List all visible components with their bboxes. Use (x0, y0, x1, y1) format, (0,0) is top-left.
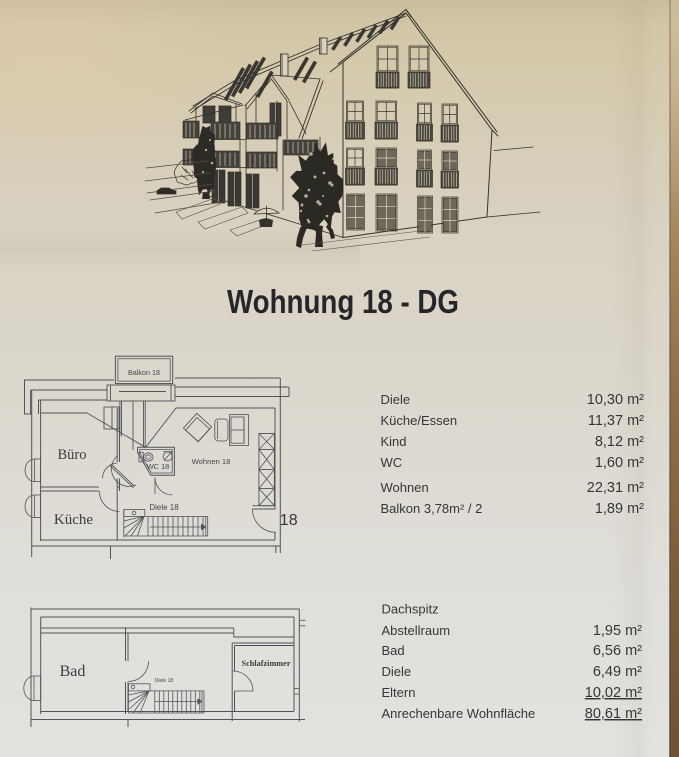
svg-text:18: 18 (280, 512, 298, 529)
svg-text:Küche: Küche (54, 512, 93, 528)
svg-text:Balkon 3,78m² / 2: Balkon 3,78m² / 2 (381, 501, 483, 516)
svg-text:WC 18: WC 18 (147, 462, 170, 471)
svg-text:Anrechenbare Wohnfläche: Anrechenbare Wohnfläche (382, 706, 536, 721)
svg-text:1,95 m²: 1,95 m² (593, 623, 642, 639)
svg-text:80,61 m²: 80,61 m² (585, 706, 642, 722)
svg-text:Diele 18: Diele 18 (149, 503, 179, 512)
svg-text:Bad: Bad (60, 663, 86, 680)
svg-text:8,12 m²: 8,12 m² (595, 434, 644, 450)
svg-text:Abstellraum: Abstellraum (382, 623, 451, 638)
svg-text:Balkon 18: Balkon 18 (128, 368, 160, 377)
svg-text:Schlafzimmer: Schlafzimmer (242, 658, 291, 668)
svg-text:Dachspitz: Dachspitz (382, 602, 439, 617)
svg-text:Diele: Diele (381, 392, 411, 407)
svg-text:Diele 18: Diele 18 (155, 678, 174, 684)
svg-text:6,56 m²: 6,56 m² (593, 643, 642, 659)
svg-text:Kind: Kind (381, 434, 407, 449)
svg-text:Wohnung 18 - DG: Wohnung 18 - DG (227, 284, 459, 321)
svg-text:6,49 m²: 6,49 m² (593, 664, 642, 680)
svg-text:Büro: Büro (58, 447, 87, 463)
svg-text:Küche/Essen: Küche/Essen (381, 413, 458, 428)
svg-text:22,31 m²: 22,31 m² (587, 480, 644, 496)
svg-text:10,30 m²: 10,30 m² (587, 392, 644, 408)
svg-text:WC: WC (381, 455, 403, 470)
svg-text:10,02 m²: 10,02 m² (585, 685, 642, 701)
svg-text:Wohnen: Wohnen (381, 480, 429, 495)
svg-text:Bad: Bad (382, 643, 405, 658)
svg-text:1,89 m²: 1,89 m² (595, 501, 644, 517)
svg-text:Diele: Diele (382, 664, 412, 679)
svg-text:Eltern: Eltern (382, 685, 416, 700)
svg-text:11,37 m²: 11,37 m² (588, 413, 644, 429)
svg-text:1,60 m²: 1,60 m² (595, 455, 644, 471)
svg-text:Wohnen 18: Wohnen 18 (192, 457, 231, 466)
